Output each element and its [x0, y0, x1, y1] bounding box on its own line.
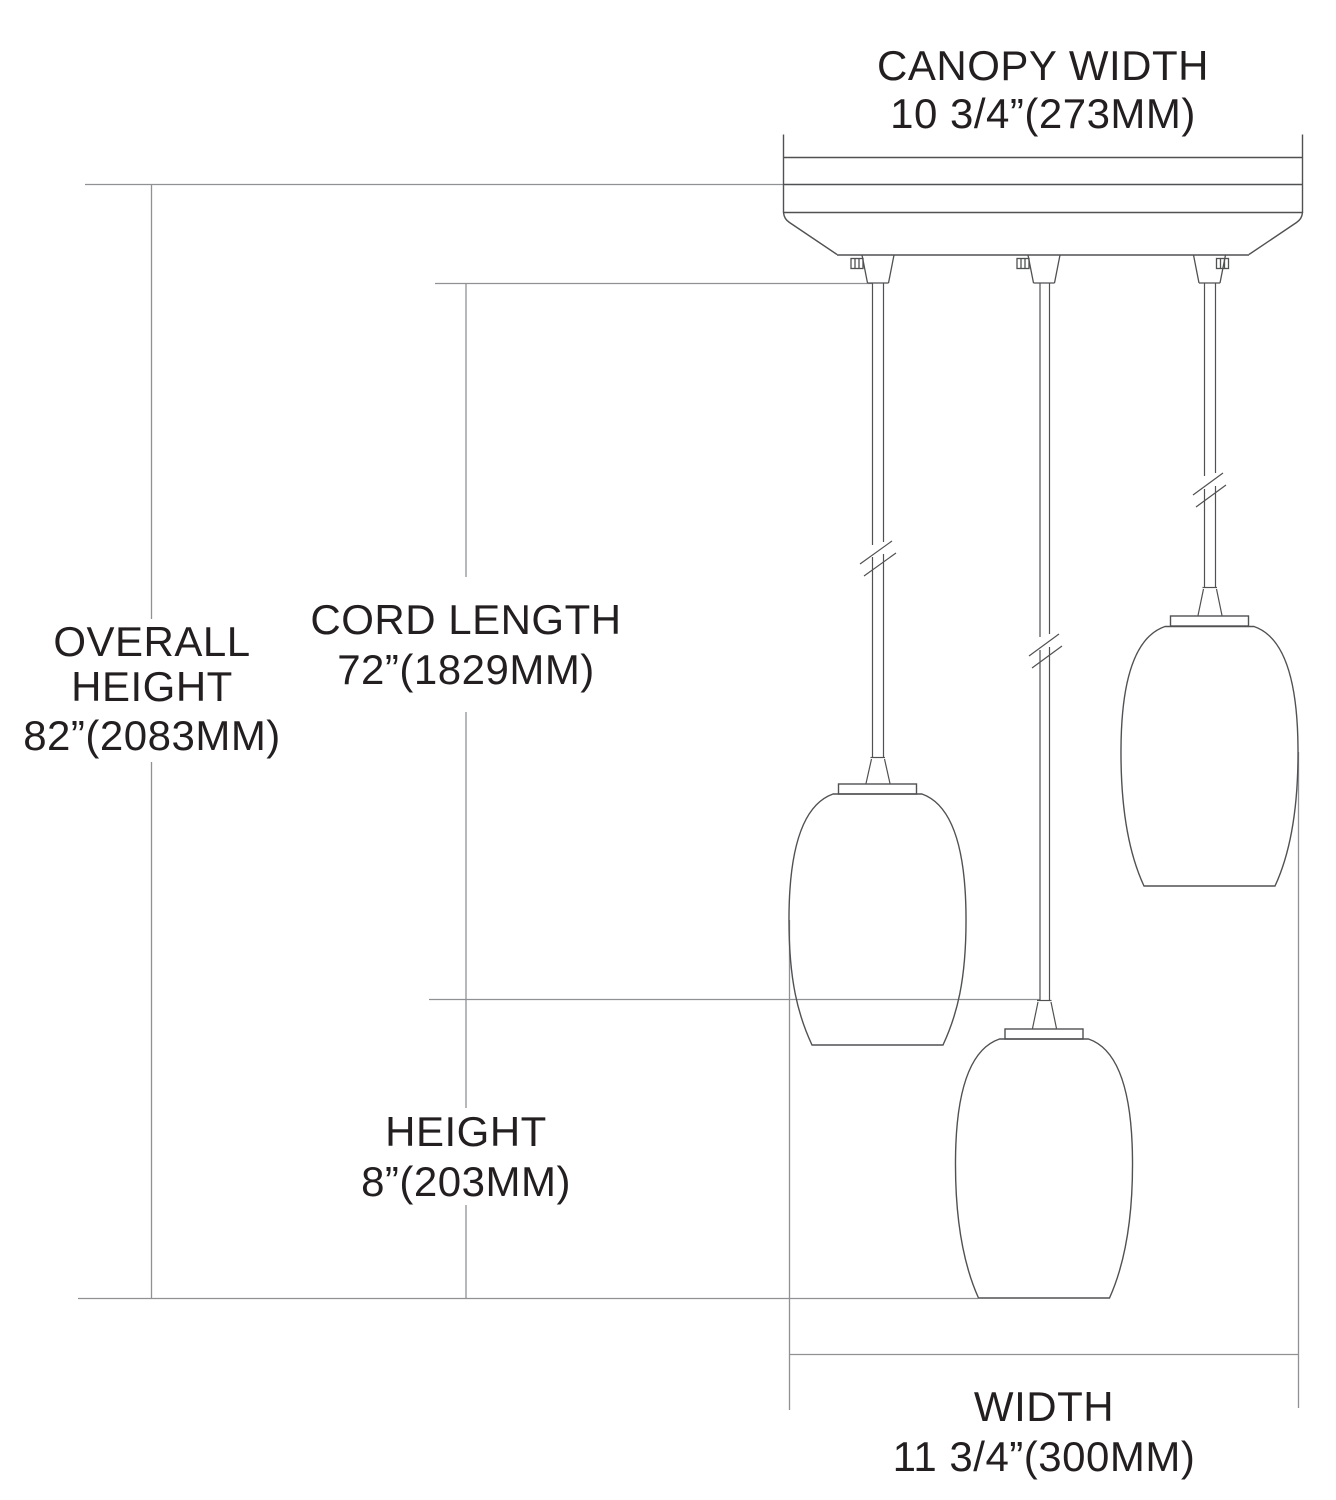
width-label: WIDTH: [974, 1383, 1114, 1430]
cord-right-break-icon: [1193, 473, 1226, 507]
cord-left: [860, 283, 896, 757]
height-label: HEIGHT: [385, 1108, 547, 1155]
cord-right: [1193, 283, 1226, 587]
cord-length-value: 72”(1829MM): [337, 646, 595, 693]
overall-height-label-line2: HEIGHT: [71, 663, 233, 710]
pendant-left-glass: [789, 794, 966, 1045]
height-value: 8”(203MM): [361, 1158, 571, 1205]
width-value: 11 3/4”(300MM): [893, 1433, 1196, 1480]
pendant-left: [789, 758, 966, 1046]
pendant-bottom-socket-taper: [1033, 1002, 1057, 1029]
pendant-bottom-glass: [955, 1039, 1132, 1298]
canopy-right-flare: [1249, 213, 1303, 255]
cord-left-break-icon: [860, 541, 896, 576]
socket-middle: [1028, 255, 1060, 283]
socket-left: [862, 255, 894, 283]
pendant-left-collar: [839, 784, 917, 794]
pendant-right-collar: [1171, 616, 1249, 626]
fixture-diagram-canvas: CANOPY WIDTH 10 3/4”(273MM) OVERALL HEIG…: [0, 0, 1336, 1500]
cord-length-label: CORD LENGTH: [310, 596, 621, 643]
pendant-bottom-collar: [1005, 1029, 1083, 1039]
dimension-lines: [78, 185, 1299, 1411]
socket-screw-middle: [1017, 259, 1029, 269]
socket-screw-left: [851, 259, 863, 269]
pendant-right: [1121, 588, 1298, 887]
overall-height-value: 82”(2083MM): [23, 712, 281, 759]
canopy-width-value: 10 3/4”(273MM): [890, 90, 1196, 137]
cords: [860, 283, 1226, 1000]
canopy-left-flare: [784, 213, 838, 255]
pendants: [789, 588, 1298, 1299]
canopy-width-label: CANOPY WIDTH: [877, 42, 1209, 89]
overall-height-label-line1: OVERALL: [53, 618, 250, 665]
pendant-left-socket-taper: [866, 759, 890, 784]
canopy-sockets: [851, 255, 1229, 283]
pendant-bottom: [955, 1001, 1132, 1299]
pendant-right-socket-taper: [1198, 589, 1222, 616]
dimension-labels: CANOPY WIDTH 10 3/4”(273MM) OVERALL HEIG…: [23, 42, 1209, 1480]
cord-middle: [1029, 283, 1062, 1000]
canopy: [784, 135, 1303, 256]
pendant-fixture-dimension-diagram: CANOPY WIDTH 10 3/4”(273MM) OVERALL HEIG…: [0, 0, 1336, 1500]
pendant-right-glass: [1121, 627, 1298, 887]
cord-middle-break-icon: [1029, 634, 1062, 668]
